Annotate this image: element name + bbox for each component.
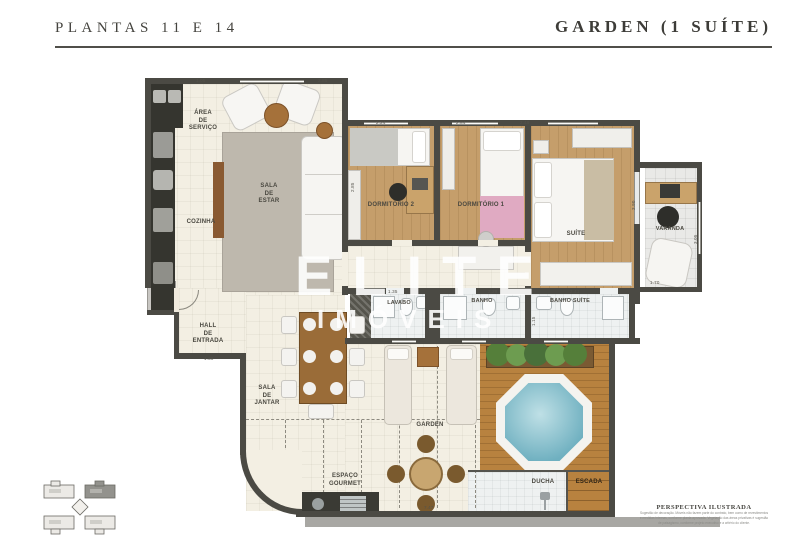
dim-label: 2.49	[520, 120, 530, 125]
escada-floor	[566, 472, 609, 511]
side-table	[316, 122, 333, 139]
key-plan-unit	[44, 481, 115, 534]
laptop-icon	[412, 178, 428, 190]
stove-icon	[153, 208, 173, 232]
office-chair-icon	[657, 206, 679, 228]
sofa	[301, 136, 346, 260]
bed-blanket-beige	[584, 160, 614, 240]
shower-fixture-icon	[540, 492, 550, 500]
lounger-pillow	[450, 348, 473, 360]
dim-label: 2.84	[456, 120, 466, 125]
door-gap	[478, 240, 498, 246]
plate	[303, 318, 316, 331]
garden-chair	[417, 435, 435, 453]
key-plan	[40, 474, 120, 542]
pergola-dashed-line	[246, 419, 480, 420]
dining-chair	[308, 404, 334, 419]
nightstand	[533, 140, 549, 154]
plate	[330, 382, 343, 395]
jacuzzi-water	[505, 383, 583, 461]
bed-pillow	[534, 162, 552, 198]
room-label-suite: SUÍTE	[556, 231, 596, 239]
dim-label: 1.15	[531, 316, 536, 326]
garden-table	[409, 457, 443, 491]
wall	[640, 287, 702, 292]
fridge-icon	[153, 132, 173, 158]
plate	[303, 382, 316, 395]
wardrobe	[442, 128, 455, 190]
dim-label: 3.05	[693, 234, 698, 244]
plate	[303, 350, 316, 363]
room-label-area-servico: ÁREA DE SERVIÇO	[182, 110, 224, 133]
garden-chair	[387, 465, 405, 483]
room-label-lavabo: LAVABO	[376, 300, 422, 307]
dim-label: 2.24	[376, 120, 386, 125]
legal-title: PERSPECTIVA ILUSTRADA	[633, 504, 775, 511]
dining-chair	[281, 348, 297, 366]
dim-label: 2.41	[570, 289, 580, 294]
room-label-cozinha: COZINHA	[178, 219, 224, 227]
wall	[145, 78, 151, 288]
window	[544, 340, 568, 343]
door-gap	[600, 288, 618, 294]
window	[240, 80, 304, 83]
plate	[330, 318, 343, 331]
wall	[640, 162, 702, 168]
ducha-escada-divider	[566, 472, 568, 511]
window	[462, 340, 486, 343]
dim-label: 1.30	[204, 356, 214, 361]
dim-label: 3.90	[631, 200, 636, 210]
bed-pillow	[534, 202, 552, 238]
room-label-dormitorio2: DORMITÓRIO 2	[350, 202, 432, 210]
closet	[572, 128, 632, 148]
dryer-icon	[168, 90, 181, 103]
dining-chair	[349, 380, 365, 398]
monitor-icon	[660, 184, 680, 198]
sink-icon	[506, 296, 520, 310]
door-gap	[458, 288, 476, 294]
room-label-escada: ESCADA	[567, 479, 611, 487]
office-chair-icon	[389, 183, 407, 201]
dim-label: 1.70	[650, 280, 660, 285]
sofa-cushion	[305, 214, 342, 215]
dim-label: 2.85	[318, 78, 328, 83]
window	[548, 122, 598, 125]
legal-footer: PERSPECTIVA ILUSTRADA Sugestão de decora…	[633, 504, 775, 526]
dining-chair	[349, 316, 365, 334]
door-gap	[342, 252, 348, 286]
floor-plan: ÁREA DE SERVIÇO COZINHA SALA DE ESTAR DO…	[0, 0, 790, 545]
shower-stem-icon	[544, 500, 546, 510]
dim-label: 1.05	[196, 78, 206, 83]
room-label-garden: GARDEN	[406, 422, 454, 430]
wall	[434, 126, 440, 246]
wall	[609, 340, 615, 517]
plant	[563, 342, 587, 366]
bench	[540, 262, 632, 286]
room-label-sala-jantar: SALA DE JANTAR	[244, 385, 290, 408]
coffee-table	[264, 103, 289, 128]
dining-chair	[349, 348, 365, 366]
bed-pillow	[483, 131, 521, 151]
bed-pillow	[412, 131, 426, 163]
wall	[296, 511, 615, 517]
dresser	[458, 246, 514, 270]
grill-icon	[340, 496, 366, 512]
brochure-page: PLANTAS 11 E 14 GARDEN (1 SUÍTE)	[0, 0, 790, 545]
door-gap	[392, 240, 412, 246]
wall	[348, 240, 525, 246]
oven-icon	[153, 262, 173, 284]
room-label-sala-estar: SALA DE ESTAR	[246, 183, 292, 206]
room-label-dormitorio1: DORMITÓRIO 1	[438, 202, 524, 210]
deck-edge	[468, 470, 609, 472]
plate	[330, 350, 343, 363]
garden-chair	[447, 465, 465, 483]
room-label-espaco-gourmet: ESPAÇO GOURMET	[314, 473, 376, 488]
wall	[425, 288, 440, 344]
pergola-dashed-line	[475, 420, 476, 508]
dim-label: 7.47	[424, 505, 434, 510]
window	[392, 340, 416, 343]
wall	[345, 338, 640, 344]
window	[364, 122, 408, 125]
room-label-banho: BANHO	[458, 298, 506, 305]
dining-chair	[281, 316, 297, 334]
bed-blanket	[350, 128, 398, 166]
tv-panel	[213, 162, 224, 238]
dim-label: 2.85	[350, 182, 355, 192]
room-label-varanda: VARANDA	[641, 226, 699, 233]
room-label-banho-suite: BANHO SUÍTE	[531, 298, 609, 305]
door-gap	[525, 252, 531, 286]
ducha-floor	[468, 472, 566, 511]
side-table	[417, 347, 439, 367]
dim-label: 2.28	[488, 289, 498, 294]
legal-disclaimer: de paisagismo, conforme projeto executiv…	[633, 521, 775, 526]
wall	[174, 312, 179, 358]
washer-icon	[153, 90, 166, 103]
sink-icon	[153, 170, 173, 190]
sofa-cushion	[305, 174, 342, 175]
dim-label: 1.35	[388, 289, 398, 294]
room-label-ducha: DUCHA	[521, 479, 565, 487]
suite-varanda-door	[634, 172, 640, 224]
lounger-pillow	[387, 348, 409, 360]
sink-icon	[312, 498, 324, 510]
room-label-hall: HALL DE ENTRADA	[182, 323, 234, 346]
